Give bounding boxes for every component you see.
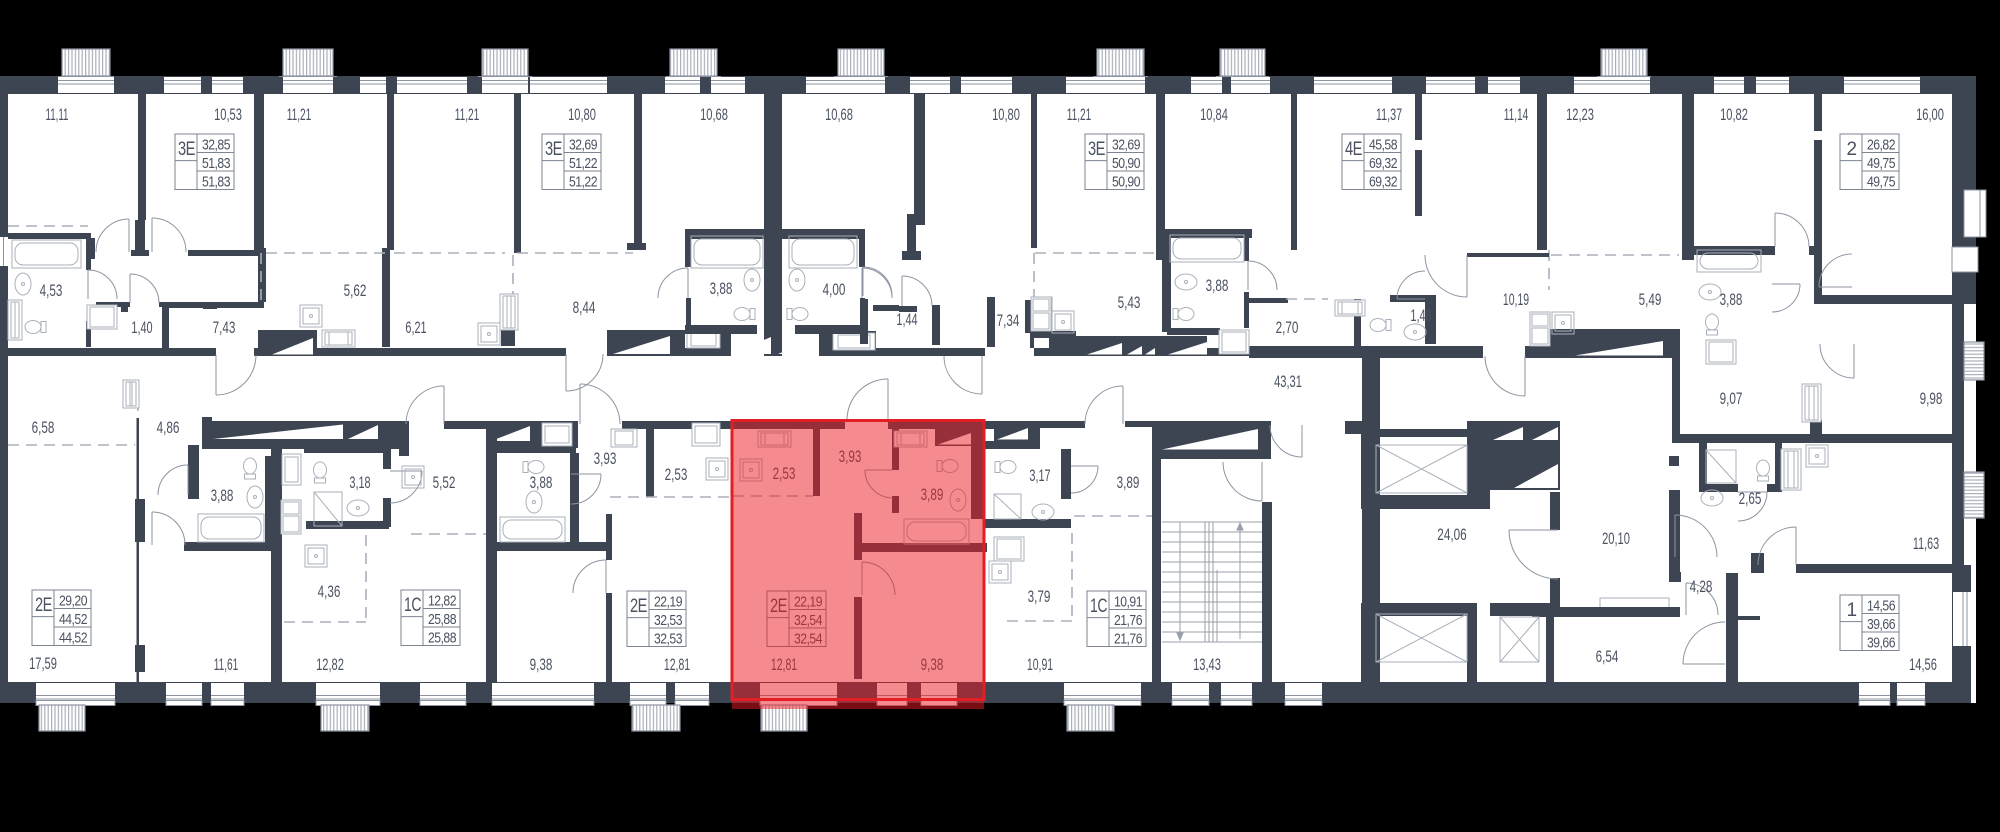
svg-text:10,91: 10,91 <box>1114 594 1142 610</box>
svg-text:49,75: 49,75 <box>1867 156 1895 172</box>
svg-text:4,00: 4,00 <box>823 280 846 299</box>
svg-text:51,83: 51,83 <box>202 174 230 190</box>
svg-text:3E: 3E <box>178 139 195 160</box>
svg-text:50,90: 50,90 <box>1112 174 1140 190</box>
svg-text:50,90: 50,90 <box>1112 156 1140 172</box>
svg-text:1,40: 1,40 <box>131 318 152 337</box>
svg-text:10,68: 10,68 <box>700 105 728 124</box>
svg-text:12,81: 12,81 <box>664 655 690 674</box>
svg-text:1C: 1C <box>1090 596 1107 617</box>
svg-text:3,88: 3,88 <box>1206 276 1229 295</box>
svg-text:39,66: 39,66 <box>1867 635 1895 651</box>
svg-text:4,28: 4,28 <box>1690 577 1713 596</box>
svg-text:3,79: 3,79 <box>1028 587 1051 606</box>
svg-text:3,88: 3,88 <box>530 473 553 492</box>
svg-text:5,43: 5,43 <box>1118 293 1141 312</box>
svg-text:32,53: 32,53 <box>654 613 682 629</box>
svg-text:10,53: 10,53 <box>214 105 242 124</box>
svg-text:2: 2 <box>1847 139 1857 160</box>
svg-text:17,59: 17,59 <box>29 654 57 673</box>
svg-text:39,66: 39,66 <box>1867 617 1895 633</box>
svg-text:10,91: 10,91 <box>1027 655 1053 674</box>
svg-text:2,53: 2,53 <box>665 465 688 484</box>
svg-text:49,75: 49,75 <box>1867 174 1895 190</box>
svg-text:10,82: 10,82 <box>1720 105 1748 124</box>
svg-text:6,54: 6,54 <box>1596 647 1619 666</box>
svg-text:24,06: 24,06 <box>1437 525 1466 544</box>
svg-text:4E: 4E <box>1345 139 1362 160</box>
svg-text:32,69: 32,69 <box>569 137 597 153</box>
svg-text:7,34: 7,34 <box>997 311 1020 330</box>
svg-text:4,86: 4,86 <box>157 418 180 437</box>
svg-text:1: 1 <box>1847 600 1857 621</box>
svg-text:2,65: 2,65 <box>1739 489 1762 508</box>
svg-text:11,21: 11,21 <box>1067 105 1092 124</box>
svg-text:12,23: 12,23 <box>1566 105 1594 124</box>
svg-text:1,44: 1,44 <box>896 310 917 329</box>
svg-text:13,43: 13,43 <box>1193 655 1221 674</box>
svg-text:6,21: 6,21 <box>405 318 426 337</box>
svg-text:12,82: 12,82 <box>428 593 456 609</box>
svg-text:25,88: 25,88 <box>428 612 456 628</box>
svg-text:3E: 3E <box>545 139 562 160</box>
svg-text:4,53: 4,53 <box>40 281 63 300</box>
svg-text:5,49: 5,49 <box>1639 290 1662 309</box>
svg-text:6,58: 6,58 <box>32 418 55 437</box>
svg-text:3,18: 3,18 <box>349 473 370 492</box>
svg-text:51,22: 51,22 <box>569 174 597 190</box>
svg-text:9,38: 9,38 <box>530 655 553 674</box>
svg-text:11,61: 11,61 <box>214 655 239 674</box>
svg-text:21,76: 21,76 <box>1114 613 1142 629</box>
svg-text:8,44: 8,44 <box>573 298 596 317</box>
svg-text:29,20: 29,20 <box>59 593 87 609</box>
svg-text:3E: 3E <box>1088 139 1105 160</box>
svg-text:44,52: 44,52 <box>59 630 87 646</box>
svg-text:11,11: 11,11 <box>46 105 69 124</box>
svg-text:1C: 1C <box>404 595 421 616</box>
svg-text:2E: 2E <box>630 596 647 617</box>
svg-text:11,63: 11,63 <box>1913 534 1939 553</box>
svg-text:10,68: 10,68 <box>825 105 853 124</box>
svg-text:3,88: 3,88 <box>211 486 234 505</box>
svg-text:2,70: 2,70 <box>1276 318 1299 337</box>
svg-text:11,21: 11,21 <box>455 105 480 124</box>
svg-text:14,56: 14,56 <box>1867 598 1895 614</box>
svg-text:4,36: 4,36 <box>318 582 341 601</box>
svg-text:10,80: 10,80 <box>992 105 1020 124</box>
svg-text:9,07: 9,07 <box>1720 389 1743 408</box>
svg-text:10,19: 10,19 <box>1503 290 1529 309</box>
svg-text:11,37: 11,37 <box>1376 105 1402 124</box>
svg-text:32,85: 32,85 <box>202 137 230 153</box>
svg-text:11,14: 11,14 <box>1504 105 1529 124</box>
svg-text:51,83: 51,83 <box>202 156 230 172</box>
svg-text:45,58: 45,58 <box>1369 137 1397 153</box>
svg-text:3,88: 3,88 <box>1720 290 1743 309</box>
svg-text:3,89: 3,89 <box>1117 473 1140 492</box>
svg-text:22,19: 22,19 <box>654 594 682 610</box>
svg-text:12,82: 12,82 <box>316 655 344 674</box>
svg-text:26,82: 26,82 <box>1867 137 1895 153</box>
svg-text:5,62: 5,62 <box>344 281 367 300</box>
svg-text:43,31: 43,31 <box>1274 372 1302 391</box>
svg-text:14,56: 14,56 <box>1909 655 1937 674</box>
svg-text:3,88: 3,88 <box>710 279 733 298</box>
svg-text:21,76: 21,76 <box>1114 631 1142 647</box>
svg-text:5,52: 5,52 <box>433 473 456 492</box>
svg-text:44,52: 44,52 <box>59 612 87 628</box>
svg-text:25,88: 25,88 <box>428 630 456 646</box>
svg-text:69,32: 69,32 <box>1369 156 1397 172</box>
svg-text:69,32: 69,32 <box>1369 174 1397 190</box>
svg-text:32,69: 32,69 <box>1112 137 1140 153</box>
svg-text:32,53: 32,53 <box>654 631 682 647</box>
svg-text:3,93: 3,93 <box>594 449 617 468</box>
svg-text:7,43: 7,43 <box>213 318 236 337</box>
svg-text:9,98: 9,98 <box>1920 389 1943 408</box>
svg-text:11,21: 11,21 <box>287 105 312 124</box>
svg-text:3,17: 3,17 <box>1029 466 1050 485</box>
svg-text:10,84: 10,84 <box>1200 105 1228 124</box>
svg-text:10,80: 10,80 <box>568 105 596 124</box>
svg-text:2E: 2E <box>35 595 52 616</box>
svg-text:51,22: 51,22 <box>569 156 597 172</box>
svg-text:16,00: 16,00 <box>1916 105 1944 124</box>
svg-text:20,10: 20,10 <box>1602 529 1630 548</box>
svg-text:1,48: 1,48 <box>1410 306 1431 325</box>
